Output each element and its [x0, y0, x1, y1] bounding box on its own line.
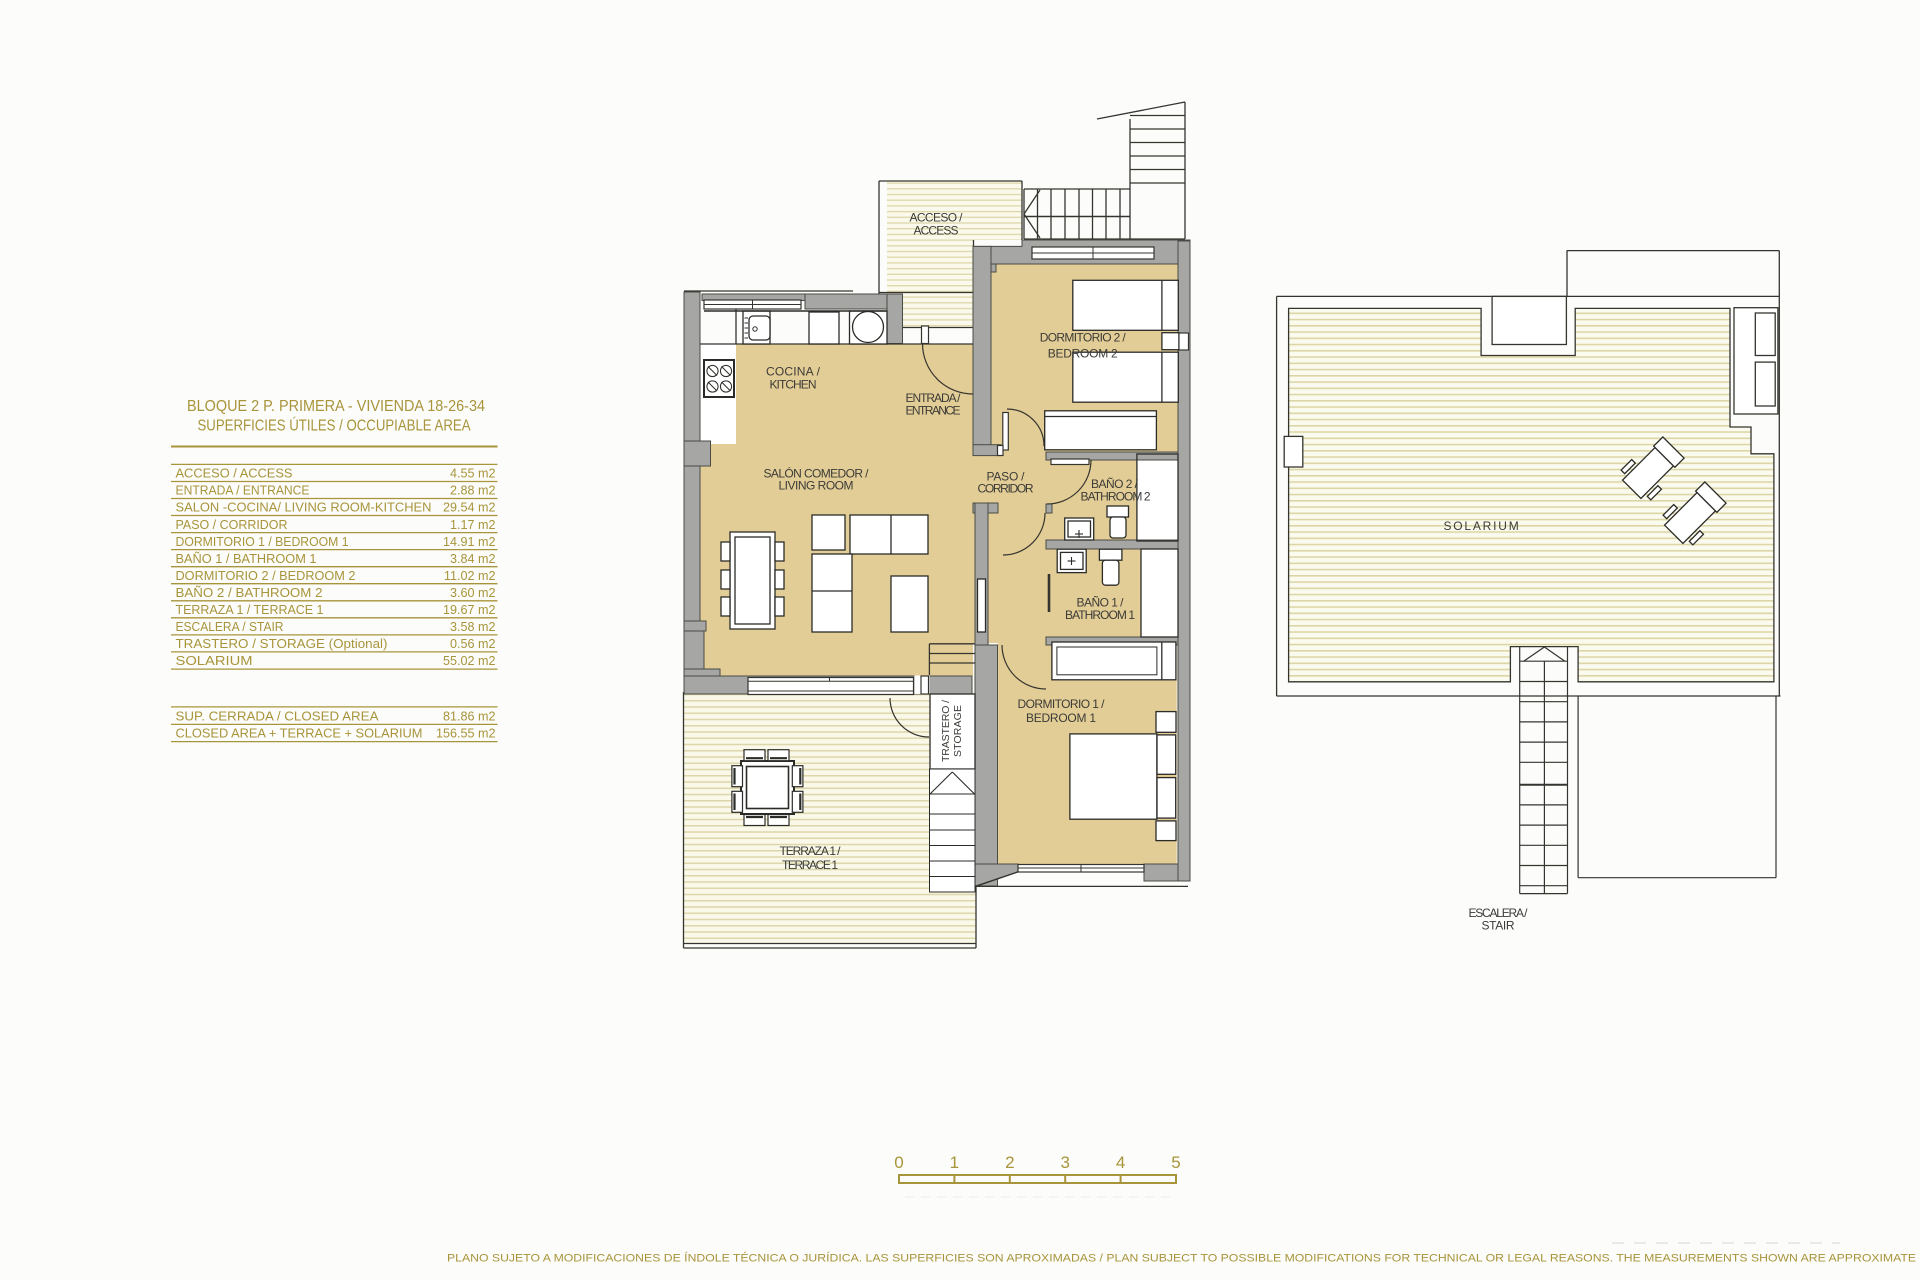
- svg-text:PLANO SUJETO A MODIFICACIONES: PLANO SUJETO A MODIFICACIONES DE ÍNDOLE …: [447, 1252, 1917, 1265]
- svg-text:LIVING ROOM: LIVING ROOM: [779, 479, 854, 493]
- svg-text:0: 0: [894, 1153, 903, 1172]
- svg-text:5: 5: [1171, 1153, 1180, 1172]
- svg-text:BAÑO 2 / BATHROOM 2: BAÑO 2 / BATHROOM 2: [176, 586, 323, 600]
- svg-text:BEDROOM 1: BEDROOM 1: [1026, 711, 1096, 725]
- svg-text:0.56 m2: 0.56 m2: [450, 637, 496, 651]
- svg-text:KITCHEN: KITCHEN: [770, 378, 817, 392]
- svg-text:2.88 m2: 2.88 m2: [450, 484, 496, 498]
- svg-text:19.67 m2: 19.67 m2: [443, 603, 496, 617]
- svg-text:DORMITORIO 2 / BEDROOM 2: DORMITORIO 2 / BEDROOM 2: [176, 569, 356, 583]
- svg-text:TERRACE 1: TERRACE 1: [782, 858, 838, 872]
- svg-text:PASO / CORRIDOR: PASO / CORRIDOR: [176, 518, 288, 532]
- svg-text:ACCESO /: ACCESO /: [910, 211, 964, 225]
- svg-text:CLOSED AREA + TERRACE + SOLARI: CLOSED AREA + TERRACE + SOLARIUM: [176, 727, 423, 741]
- svg-text:BATHROOM 2: BATHROOM 2: [1081, 490, 1151, 504]
- svg-text:4: 4: [1116, 1153, 1125, 1172]
- svg-text:TRASTERO /: TRASTERO /: [940, 700, 952, 762]
- svg-text:ACCESO / ACCESS: ACCESO / ACCESS: [176, 467, 293, 481]
- svg-text:11.02 m2: 11.02 m2: [444, 569, 496, 583]
- svg-text:DORMITORIO 1 /: DORMITORIO 1 /: [1018, 697, 1106, 711]
- svg-text:2: 2: [1005, 1153, 1014, 1172]
- svg-text:DORMITORIO 2 /: DORMITORIO 2 /: [1040, 331, 1127, 345]
- svg-text:BAÑO 1 / BATHROOM 1: BAÑO 1 / BATHROOM 1: [176, 552, 317, 566]
- svg-text:55.02 m2: 55.02 m2: [443, 654, 496, 668]
- svg-text:3.84 m2: 3.84 m2: [450, 552, 496, 566]
- svg-text:1: 1: [950, 1153, 959, 1172]
- svg-text:CORRIDOR: CORRIDOR: [978, 482, 1034, 496]
- svg-text:TERRAZA 1 / TERRACE 1: TERRAZA 1 / TERRACE 1: [176, 603, 324, 617]
- svg-text:SUP. CERRADA / CLOSED AREA: SUP. CERRADA / CLOSED AREA: [176, 709, 380, 723]
- svg-text:TRASTERO / STORAGE (Optional): TRASTERO / STORAGE (Optional): [176, 637, 388, 651]
- svg-text:SOLARIUM: SOLARIUM: [176, 654, 253, 668]
- svg-text:SOLARIUM: SOLARIUM: [1443, 519, 1520, 533]
- svg-text:BLOQUE 2 P. PRIMERA - VIVIEND: BLOQUE 2 P. PRIMERA - VIVIENDA 18-26-34: [187, 398, 485, 415]
- svg-text:BATHROOM 1: BATHROOM 1: [1065, 608, 1135, 622]
- svg-text:ESCALERA / STAIR: ESCALERA / STAIR: [176, 620, 284, 634]
- svg-text:1.17 m2: 1.17 m2: [450, 518, 496, 532]
- svg-text:STORAGE: STORAGE: [952, 705, 964, 757]
- svg-text:81.86 m2: 81.86 m2: [443, 709, 496, 723]
- svg-text:3.58 m2: 3.58 m2: [450, 620, 496, 634]
- svg-text:STAIR: STAIR: [1482, 919, 1515, 933]
- svg-text:DORMITORIO 1 / BEDROOM 1: DORMITORIO 1 / BEDROOM 1: [176, 535, 349, 549]
- svg-text:SUPERFICIES ÚTILES / OCCUPIABL: SUPERFICIES ÚTILES / OCCUPIABLE AREA: [198, 418, 472, 435]
- svg-text:4.55 m2: 4.55 m2: [450, 467, 496, 481]
- svg-text:TERRAZA 1 /: TERRAZA 1 /: [780, 844, 842, 858]
- svg-text:COCINA /: COCINA /: [766, 365, 821, 379]
- svg-text:SALON -COCINA/ LIVING ROOM-KIT: SALON -COCINA/ LIVING ROOM-KITCHEN: [176, 501, 432, 515]
- svg-text:3: 3: [1060, 1153, 1069, 1172]
- svg-text:29.54 m2: 29.54 m2: [443, 501, 496, 515]
- svg-text:3.60 m2: 3.60 m2: [450, 586, 496, 600]
- svg-text:BEDROOM 2: BEDROOM 2: [1048, 347, 1118, 361]
- svg-text:156.55 m2: 156.55 m2: [436, 727, 496, 741]
- svg-text:14.91 m2: 14.91 m2: [443, 535, 496, 549]
- svg-text:ENTRANCE: ENTRANCE: [906, 404, 961, 418]
- svg-text:ENTRADA / ENTRANCE: ENTRADA / ENTRANCE: [176, 484, 310, 498]
- svg-text:ACCESS: ACCESS: [914, 224, 959, 238]
